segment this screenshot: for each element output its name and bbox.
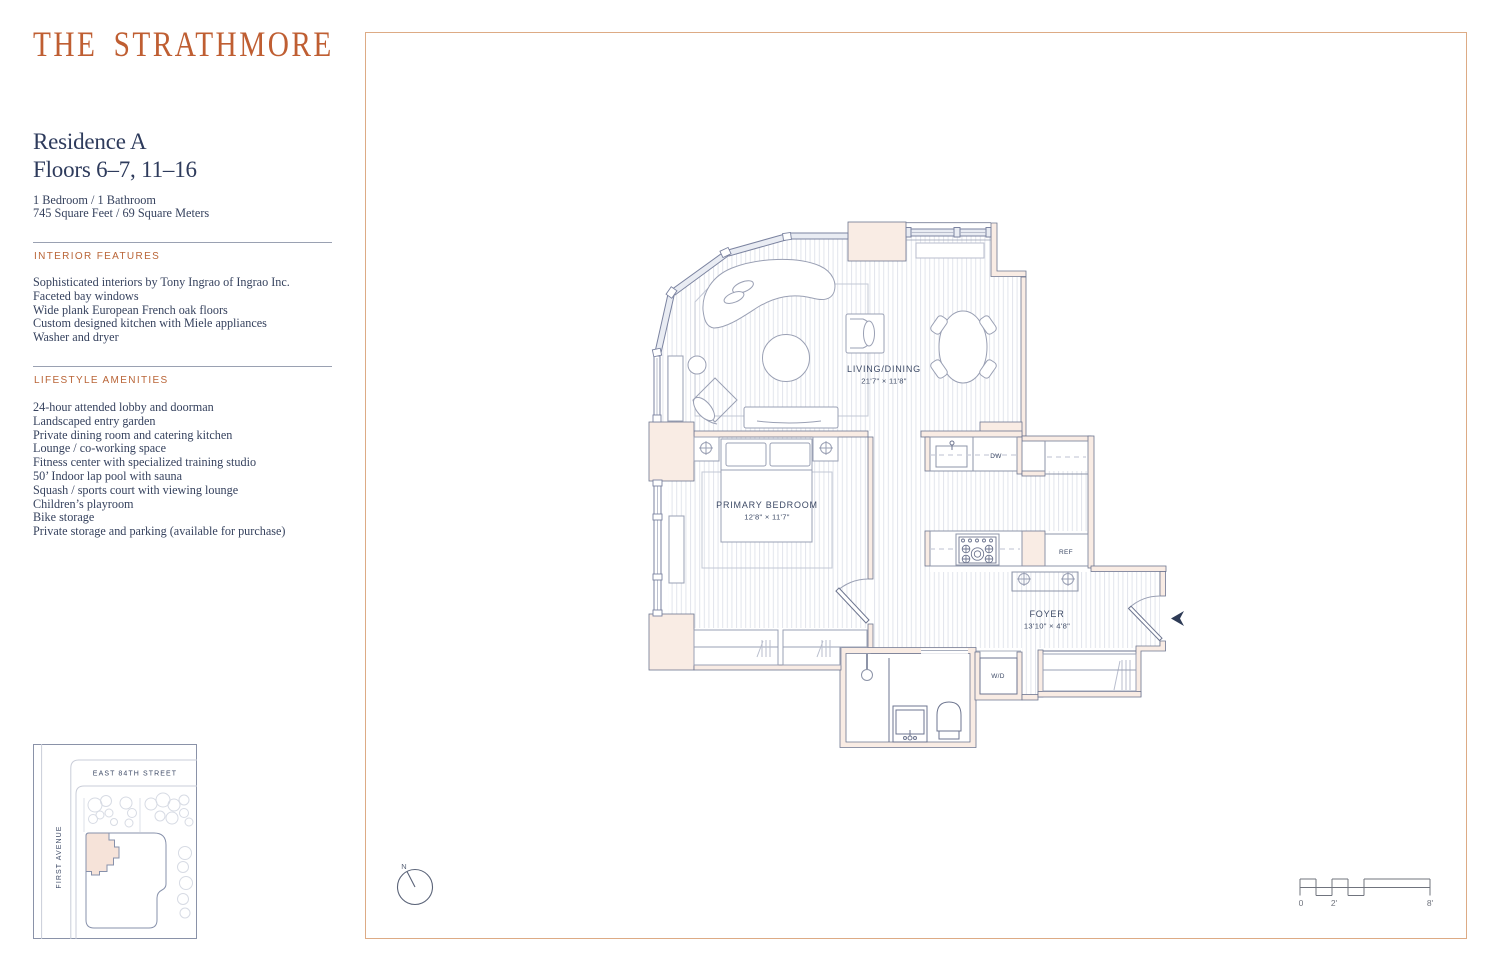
svg-text:W/D: W/D	[991, 673, 1005, 680]
svg-text:REF: REF	[1059, 549, 1073, 556]
svg-text:13'10" × 4'8": 13'10" × 4'8"	[1024, 622, 1070, 631]
svg-text:2': 2'	[1331, 898, 1338, 908]
svg-text:DW: DW	[990, 453, 1002, 460]
svg-text:N: N	[401, 862, 406, 871]
svg-text:12'8" × 11'7": 12'8" × 11'7"	[744, 513, 790, 522]
svg-text:EAST 84TH STREET: EAST 84TH STREET	[93, 771, 177, 778]
svg-text:PRIMARY BEDROOM: PRIMARY BEDROOM	[716, 500, 818, 510]
svg-text:8': 8'	[1427, 898, 1434, 908]
svg-text:LIVING/DINING: LIVING/DINING	[847, 364, 921, 374]
svg-text:FOYER: FOYER	[1029, 609, 1064, 619]
svg-text:0: 0	[1299, 898, 1304, 908]
svg-text:21'7" × 11'8": 21'7" × 11'8"	[861, 377, 907, 386]
svg-text:FIRST AVENUE: FIRST AVENUE	[56, 825, 63, 888]
